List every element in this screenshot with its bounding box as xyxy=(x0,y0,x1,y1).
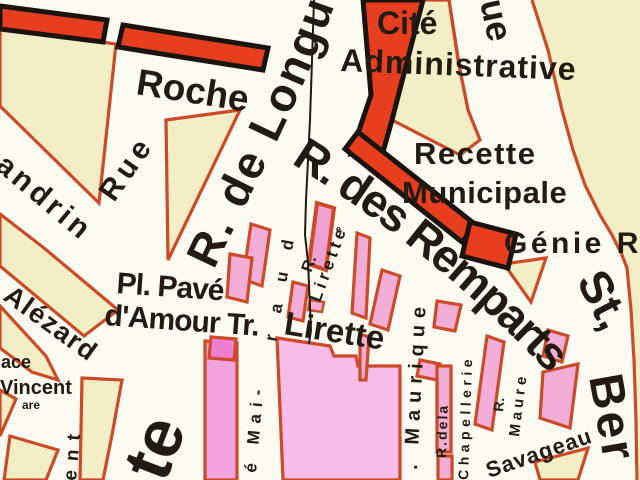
svg-text:Vincent: Vincent xyxy=(0,377,72,399)
svg-text:Génie R: Génie R xyxy=(504,227,640,260)
svg-text:R.dela: R.dela xyxy=(433,404,451,459)
svg-text:R.: R. xyxy=(490,397,507,412)
svg-text:e: e xyxy=(336,224,341,234)
svg-text:ace: ace xyxy=(1,352,31,372)
svg-text:Recette: Recette xyxy=(414,136,537,171)
svg-text:are: are xyxy=(22,398,40,412)
svg-text:Municipale: Municipale xyxy=(402,175,567,210)
svg-text:Cité: Cité xyxy=(377,5,437,41)
